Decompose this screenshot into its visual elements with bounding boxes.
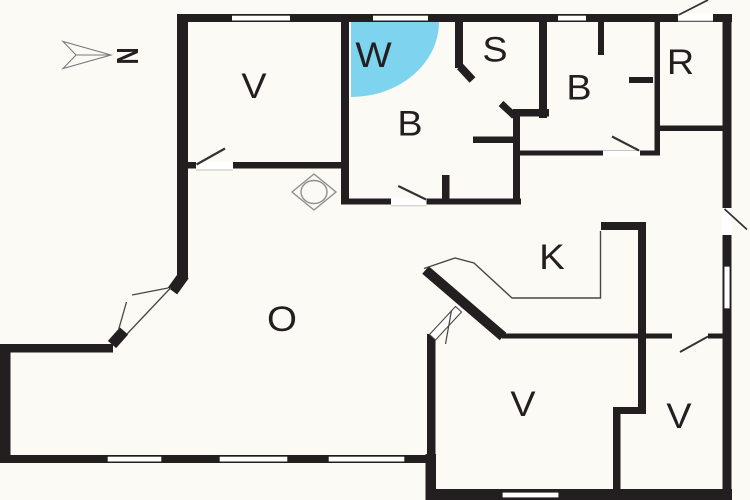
svg-text:S: S	[482, 30, 507, 69]
svg-text:V: V	[510, 384, 536, 423]
svg-text:O: O	[267, 300, 297, 339]
svg-text:V: V	[666, 396, 692, 435]
svg-text:R: R	[667, 42, 694, 81]
svg-text:W: W	[355, 36, 392, 75]
svg-text:B: B	[566, 68, 591, 107]
svg-text:N: N	[110, 47, 145, 64]
svg-text:K: K	[539, 238, 565, 277]
svg-text:V: V	[241, 66, 267, 105]
svg-text:B: B	[397, 104, 422, 143]
